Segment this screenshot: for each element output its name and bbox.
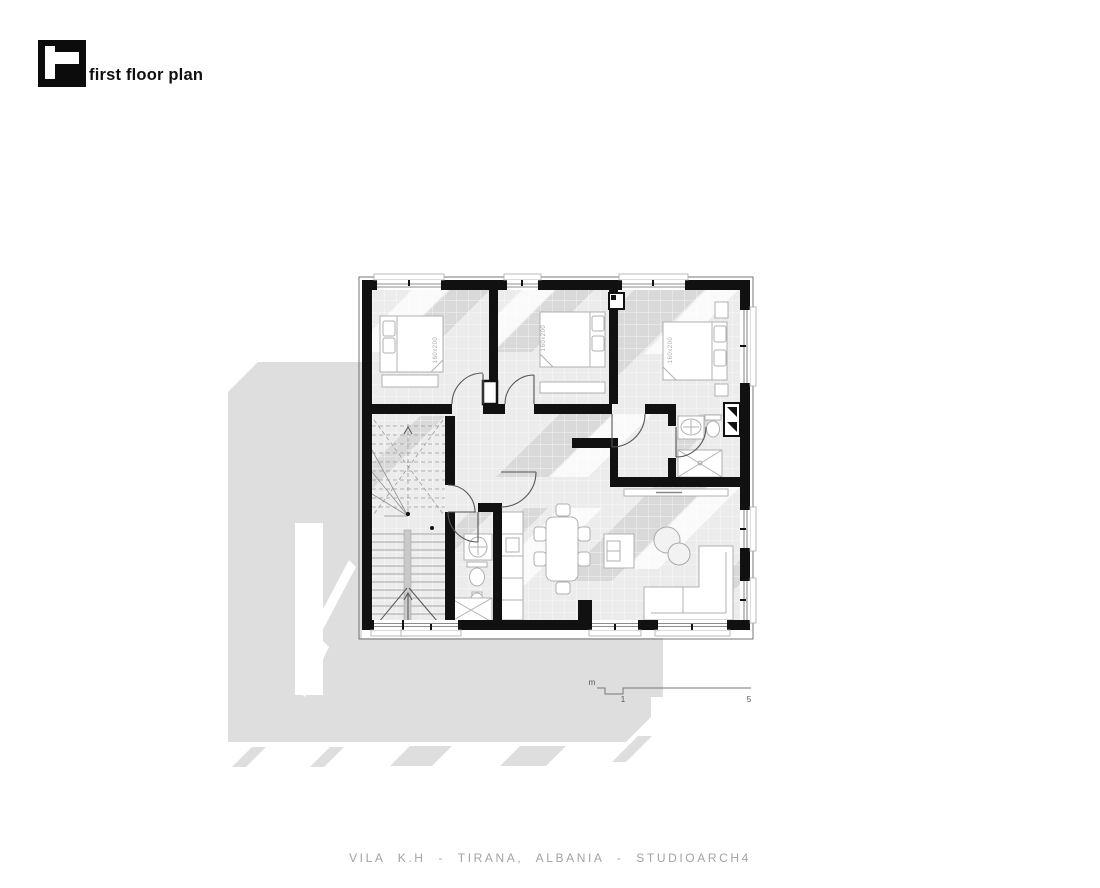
bed-bench [382, 375, 438, 387]
ventilation-shaft [724, 403, 740, 436]
scale-tick-1: 1 [621, 695, 626, 704]
toilet-icon [470, 568, 485, 586]
chair [556, 504, 570, 516]
window [504, 274, 541, 290]
chair [534, 527, 546, 541]
scale-tick-5: 5 [747, 695, 752, 704]
chair [534, 552, 546, 566]
window [740, 307, 756, 386]
drawing-sheet: first floor plan [0, 0, 1100, 888]
bed-bench [540, 382, 605, 393]
chair [556, 582, 570, 594]
window [401, 620, 461, 636]
wardrobe-niche [483, 381, 497, 404]
toilet-tank [705, 415, 721, 420]
pillow [592, 336, 604, 351]
toilet-icon [707, 421, 720, 437]
nightstand [715, 384, 728, 396]
dining-table [546, 517, 578, 581]
pillow [592, 316, 604, 331]
window [655, 620, 730, 636]
pillow [714, 350, 726, 366]
coffee-table [668, 543, 690, 565]
window [619, 274, 688, 290]
pillow [383, 321, 395, 336]
kitchen-counter [501, 512, 523, 620]
chair [578, 527, 590, 541]
window [740, 507, 756, 551]
bed-size-label: 160x200 [433, 337, 439, 364]
nightstand [715, 302, 728, 318]
toilet-tank [467, 562, 487, 567]
window [371, 620, 405, 636]
chair [578, 552, 590, 566]
bed-size-label: 160x200 [668, 337, 674, 364]
pillow [383, 338, 395, 353]
pillow [714, 326, 726, 342]
duct-shaft [609, 293, 624, 309]
window [589, 620, 641, 636]
floor-plan-drawing: 160x200 160x200 160x200 [0, 0, 1100, 888]
window [374, 274, 444, 290]
window [740, 578, 756, 623]
scale-unit-label: m [589, 678, 596, 687]
bed-size-label: 160x200 [541, 325, 547, 352]
bedroom-1-furniture: 160x200 [380, 316, 443, 387]
sheet-caption: VILA K.H - TIRANA, ALBANIA - STUDIOARCH4 [0, 851, 1100, 865]
